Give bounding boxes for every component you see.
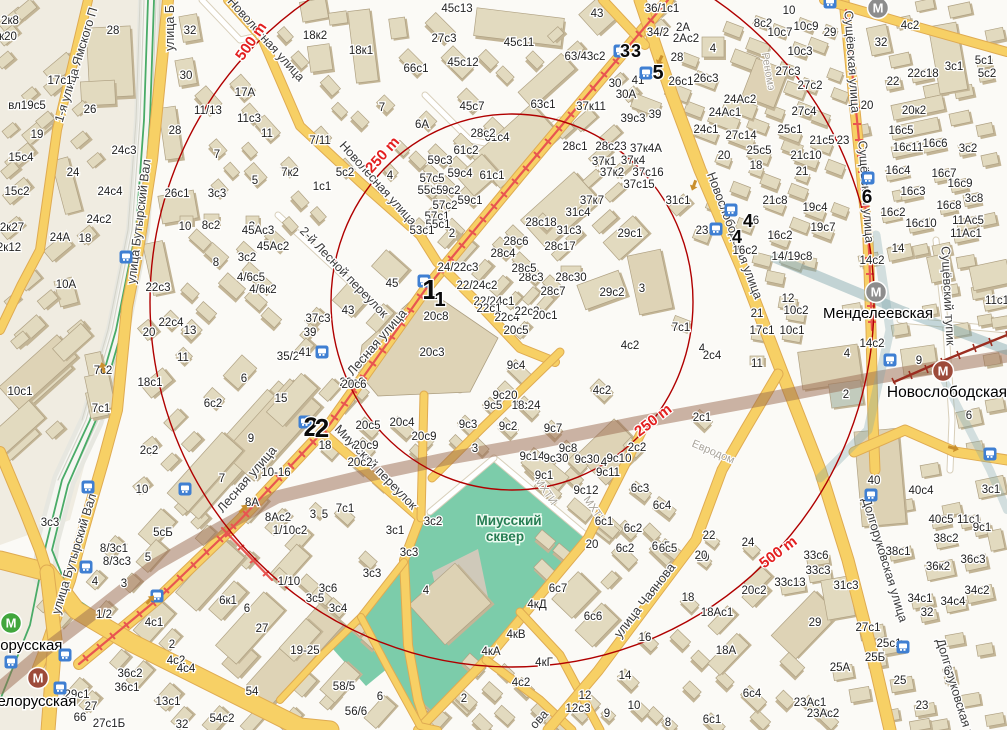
svg-text:6: 6 <box>944 666 950 678</box>
svg-text:11: 11 <box>261 128 273 140</box>
svg-text:Белорусская: Белорусская <box>0 693 76 710</box>
svg-text:20c8: 20c8 <box>424 311 449 323</box>
svg-text:9c2: 9c2 <box>499 421 518 433</box>
svg-text:54c2: 54c2 <box>210 713 235 725</box>
svg-text:16c2: 16c2 <box>768 230 793 242</box>
svg-text:31c4: 31c4 <box>566 207 592 219</box>
svg-text:20c9: 20c9 <box>354 440 379 452</box>
svg-text:40c4: 40c4 <box>909 485 935 497</box>
svg-text:11c3: 11c3 <box>237 113 261 125</box>
svg-text:28c17: 28c17 <box>544 241 575 253</box>
svg-text:17c1: 17c1 <box>750 325 775 337</box>
svg-text:66: 66 <box>74 712 87 724</box>
svg-text:16c3: 16c3 <box>901 186 926 198</box>
svg-text:45c7: 45c7 <box>460 101 485 113</box>
svg-text:9: 9 <box>604 708 610 720</box>
svg-text:6c1: 6c1 <box>703 714 722 726</box>
svg-text:3: 3 <box>631 41 641 61</box>
svg-text:18: 18 <box>750 160 763 172</box>
svg-text:24c3: 24c3 <box>112 145 137 157</box>
svg-text:3c2: 3c2 <box>959 143 978 155</box>
svg-text:9c5: 9c5 <box>484 400 503 412</box>
svg-text:7: 7 <box>219 473 225 485</box>
svg-text:1/10: 1/10 <box>278 576 300 588</box>
svg-text:7: 7 <box>214 149 220 161</box>
svg-text:10c1: 10c1 <box>8 386 33 398</box>
svg-text:18: 18 <box>79 233 92 245</box>
svg-text:24c2: 24c2 <box>87 214 112 226</box>
svg-text:16c11: 16c11 <box>893 142 923 154</box>
svg-text:9c30: 9c30 <box>575 454 600 466</box>
svg-text:59c3: 59c3 <box>428 155 453 167</box>
svg-text:4кА: 4кА <box>481 646 500 658</box>
svg-text:9c30: 9c30 <box>544 453 569 465</box>
svg-text:3c4: 3c4 <box>329 603 348 615</box>
svg-text:18c1: 18c1 <box>138 377 163 389</box>
svg-text:37c3: 37c3 <box>306 313 331 325</box>
svg-text:1/10c2: 1/10c2 <box>273 525 308 537</box>
svg-text:17c1: 17c1 <box>48 75 73 87</box>
svg-text:25: 25 <box>894 675 907 687</box>
svg-text:33c13: 33c13 <box>774 577 805 589</box>
svg-text:37к4А: 37к4А <box>630 143 662 155</box>
svg-text:6c3: 6c3 <box>631 483 650 495</box>
svg-text:31c1: 31c1 <box>666 195 691 207</box>
svg-text:26c1: 26c1 <box>165 188 190 200</box>
svg-text:13: 13 <box>184 325 197 337</box>
svg-text:4/6c5: 4/6c5 <box>237 272 265 284</box>
svg-text:45c13: 45c13 <box>441 3 472 15</box>
svg-text:10c1: 10c1 <box>780 325 805 337</box>
svg-text:36к2: 36к2 <box>926 561 950 573</box>
svg-text:М: М <box>871 285 882 300</box>
svg-text:3c3: 3c3 <box>208 188 227 200</box>
svg-text:54: 54 <box>246 686 259 698</box>
svg-text:2c4: 2c4 <box>703 350 722 362</box>
svg-text:2к12: 2к12 <box>0 242 21 254</box>
svg-text:М: М <box>33 671 44 686</box>
svg-text:43: 43 <box>342 305 355 317</box>
svg-text:10c9: 10c9 <box>794 21 819 33</box>
svg-text:27c1: 27c1 <box>856 622 881 634</box>
svg-text:6А: 6А <box>415 119 429 131</box>
svg-text:20c1: 20c1 <box>533 310 558 322</box>
svg-text:3c3: 3c3 <box>363 568 382 580</box>
svg-text:28c6: 28c6 <box>504 236 529 248</box>
svg-text:36/1c1: 36/1c1 <box>645 3 680 15</box>
svg-text:22c4: 22c4 <box>159 317 185 329</box>
svg-text:34c2: 34c2 <box>965 585 990 597</box>
svg-text:2к8: 2к8 <box>1 15 19 27</box>
svg-text:8c2: 8c2 <box>202 220 221 232</box>
svg-text:23: 23 <box>916 700 929 712</box>
svg-text:3c6: 3c6 <box>319 583 338 595</box>
svg-text:6: 6 <box>241 373 247 385</box>
svg-text:29c1: 29c1 <box>618 228 643 240</box>
svg-text:3c2: 3c2 <box>424 516 443 528</box>
svg-text:3: 3 <box>310 509 316 521</box>
svg-text:4c4: 4c4 <box>177 663 196 675</box>
svg-text:М: М <box>873 1 884 16</box>
svg-text:к20: к20 <box>0 31 17 43</box>
svg-text:3: 3 <box>472 443 478 455</box>
svg-text:4: 4 <box>710 43 717 55</box>
svg-text:7c1: 7c1 <box>336 503 355 515</box>
svg-text:4: 4 <box>387 170 394 182</box>
svg-text:8: 8 <box>213 257 219 269</box>
svg-text:14c2: 14c2 <box>860 338 885 350</box>
svg-text:5: 5 <box>145 552 151 564</box>
svg-text:2к27: 2к27 <box>0 222 24 234</box>
svg-text:10c3: 10c3 <box>788 46 813 58</box>
svg-text:Менделеевская: Менделеевская <box>823 305 933 322</box>
svg-text:27c2: 27c2 <box>798 80 823 92</box>
svg-text:вл19c5: вл19c5 <box>8 100 46 112</box>
svg-text:20: 20 <box>861 100 874 112</box>
svg-text:18: 18 <box>512 400 525 412</box>
svg-text:20: 20 <box>695 550 708 562</box>
svg-text:13c1: 13c1 <box>156 696 181 708</box>
svg-text:17А: 17А <box>235 87 256 99</box>
svg-text:6c2: 6c2 <box>624 523 643 535</box>
svg-text:24/22c3: 24/22c3 <box>438 262 479 274</box>
svg-text:37к11: 37к11 <box>576 101 606 113</box>
svg-text:20c5: 20c5 <box>504 325 529 337</box>
svg-text:3c3: 3c3 <box>41 517 60 529</box>
svg-text:20c9: 20c9 <box>412 431 437 443</box>
svg-text:53c1: 53c1 <box>410 225 435 237</box>
svg-text:10А: 10А <box>56 279 77 291</box>
svg-text:3c1: 3c1 <box>982 484 1001 496</box>
svg-text:20c2: 20c2 <box>742 585 767 597</box>
svg-text:26c1: 26c1 <box>669 76 694 88</box>
svg-text:22: 22 <box>887 76 900 88</box>
svg-text:38c2: 38c2 <box>934 533 959 545</box>
svg-text:6c1: 6c1 <box>595 516 614 528</box>
svg-text:58/5: 58/5 <box>333 681 355 693</box>
svg-text:37к4: 37к4 <box>621 155 646 167</box>
svg-text:22c3: 22c3 <box>146 282 171 294</box>
svg-text:4c2: 4c2 <box>512 677 531 689</box>
svg-text:63c1: 63c1 <box>531 99 556 111</box>
svg-text:45Ac2: 45Ac2 <box>257 241 290 253</box>
svg-text:16c2: 16c2 <box>881 207 906 219</box>
svg-text:4кД: 4кД <box>527 599 546 611</box>
svg-text:Миусский: Миусский <box>476 513 541 528</box>
svg-text:34c4: 34c4 <box>941 596 967 608</box>
svg-text:22: 22 <box>703 530 716 542</box>
svg-text:6c2: 6c2 <box>204 398 223 410</box>
svg-text:34c1: 34c1 <box>908 593 933 605</box>
svg-text:39: 39 <box>304 327 317 339</box>
svg-text:4: 4 <box>423 585 430 597</box>
svg-text:11: 11 <box>751 358 763 370</box>
svg-text:Белорусская: Белорусская <box>0 637 62 654</box>
svg-text:20: 20 <box>718 150 731 162</box>
svg-text:21: 21 <box>796 166 809 178</box>
svg-text:20c3: 20c3 <box>420 347 445 359</box>
svg-text:21c8: 21c8 <box>763 195 788 207</box>
svg-text:61c2: 61c2 <box>454 145 479 157</box>
svg-text:29: 29 <box>809 617 822 629</box>
svg-text:66c1: 66c1 <box>404 63 429 75</box>
svg-text:2: 2 <box>169 639 175 651</box>
svg-text:М: М <box>938 364 949 379</box>
svg-text:37к7: 37к7 <box>580 195 604 207</box>
svg-text:63/43c2: 63/43c2 <box>565 51 606 63</box>
svg-text:6: 6 <box>244 603 250 615</box>
svg-text:55c5: 55c5 <box>418 185 443 197</box>
svg-text:21c5: 21c5 <box>810 135 835 147</box>
svg-text:2: 2 <box>461 693 467 705</box>
svg-text:18: 18 <box>682 592 695 604</box>
svg-text:23: 23 <box>696 225 709 237</box>
svg-text:26c3: 26c3 <box>694 73 719 85</box>
svg-text:4: 4 <box>92 576 99 588</box>
svg-text:5c2: 5c2 <box>336 167 355 179</box>
svg-text:27c4: 27c4 <box>792 106 818 118</box>
svg-text:4: 4 <box>844 348 851 360</box>
svg-text:24: 24 <box>742 537 755 549</box>
svg-text:6c6: 6c6 <box>584 611 603 623</box>
svg-text:6: 6 <box>753 215 759 227</box>
svg-text:10c2: 10c2 <box>784 305 809 317</box>
svg-text:6: 6 <box>862 187 873 208</box>
svg-text:11/13: 11/13 <box>194 105 222 117</box>
svg-text:9c3: 9c3 <box>459 419 478 431</box>
svg-text:36c2: 36c2 <box>118 668 143 680</box>
svg-text:9c1: 9c1 <box>973 522 992 534</box>
svg-text:28c5: 28c5 <box>512 263 537 275</box>
svg-text:М: М <box>6 616 17 631</box>
svg-text:40c5: 40c5 <box>929 514 954 526</box>
svg-text:5: 5 <box>652 62 663 84</box>
svg-text:10: 10 <box>783 5 796 17</box>
svg-text:4c1: 4c1 <box>145 617 164 629</box>
svg-text:10c7: 10c7 <box>768 27 793 39</box>
svg-text:20: 20 <box>586 539 599 551</box>
svg-text:19-25: 19-25 <box>290 645 319 657</box>
svg-text:26: 26 <box>84 104 97 116</box>
svg-text:11Ac1: 11Ac1 <box>950 228 982 240</box>
svg-text:3c2: 3c2 <box>238 252 257 264</box>
svg-text:27c1Б: 27c1Б <box>93 718 125 730</box>
svg-text:59c1: 59c1 <box>458 195 483 207</box>
svg-text:14/19c8: 14/19c8 <box>772 251 813 263</box>
svg-text:37к2: 37к2 <box>600 167 624 179</box>
svg-text:28c18: 28c18 <box>525 217 556 229</box>
svg-text:20c6: 20c6 <box>342 379 367 391</box>
svg-text:59c4: 59c4 <box>448 168 474 180</box>
svg-text:7: 7 <box>379 102 385 114</box>
svg-text:9: 9 <box>916 355 922 367</box>
svg-text:21: 21 <box>751 308 764 320</box>
svg-text:22c18: 22c18 <box>907 68 938 80</box>
svg-text:20c4: 20c4 <box>390 417 416 429</box>
svg-text:8Ac2: 8Ac2 <box>265 512 291 524</box>
svg-text:29: 29 <box>824 27 837 39</box>
svg-text:56/6: 56/6 <box>345 706 367 718</box>
svg-text:10: 10 <box>179 221 192 233</box>
svg-text:36c1: 36c1 <box>115 682 140 694</box>
svg-text:4кВ: 4кВ <box>506 629 525 641</box>
svg-text:20к2: 20к2 <box>902 105 926 117</box>
svg-text:2: 2 <box>449 228 455 240</box>
svg-text:24А: 24А <box>50 232 71 244</box>
svg-text:12c3: 12c3 <box>566 703 591 715</box>
svg-text:4c2: 4c2 <box>593 385 612 397</box>
svg-text:57c5: 57c5 <box>420 173 445 185</box>
svg-text:33c3: 33c3 <box>806 565 831 577</box>
svg-text:9c11: 9c11 <box>596 467 620 479</box>
svg-text:4кГ: 4кГ <box>535 657 553 669</box>
svg-text:25Б: 25Б <box>865 652 885 664</box>
svg-text:36c3: 36c3 <box>961 554 986 566</box>
svg-text:28c23: 28c23 <box>595 141 626 153</box>
svg-text:12: 12 <box>579 690 592 702</box>
svg-text:3c1: 3c1 <box>945 61 964 73</box>
svg-text:10: 10 <box>628 700 641 712</box>
svg-text:25А: 25А <box>830 662 851 674</box>
svg-text:3: 3 <box>121 578 127 590</box>
svg-text:16c5: 16c5 <box>889 125 914 137</box>
svg-text:32: 32 <box>875 37 888 49</box>
svg-text:5: 5 <box>322 509 328 521</box>
svg-text:33c6: 33c6 <box>804 550 829 562</box>
svg-text:31c3: 31c3 <box>557 225 582 237</box>
svg-text:1: 1 <box>434 289 445 311</box>
svg-text:16c9: 16c9 <box>948 178 973 190</box>
svg-text:4/6к2: 4/6к2 <box>249 284 276 296</box>
svg-text:4: 4 <box>743 211 753 231</box>
svg-text:6: 6 <box>377 691 383 703</box>
svg-text:3c1: 3c1 <box>386 525 405 537</box>
svg-text:5c2: 5c2 <box>978 68 997 80</box>
svg-text:5cБ: 5cБ <box>153 527 173 539</box>
svg-text:28c30: 28c30 <box>555 272 586 284</box>
svg-text:43: 43 <box>591 8 604 20</box>
svg-text:19c4: 19c4 <box>803 202 829 214</box>
svg-text:15c4: 15c4 <box>9 152 35 164</box>
svg-text:24: 24 <box>67 167 80 179</box>
svg-text:Новослободская: Новослободская <box>887 384 1007 401</box>
svg-text:15c2: 15c2 <box>5 186 30 198</box>
svg-text:1с1: 1с1 <box>313 181 332 193</box>
svg-text:20c5: 20c5 <box>356 420 381 432</box>
svg-text:45: 45 <box>386 278 399 290</box>
svg-text:2: 2 <box>315 413 329 443</box>
svg-text:20: 20 <box>143 327 156 339</box>
svg-text:7к2: 7к2 <box>281 167 299 179</box>
svg-text:9c12: 9c12 <box>574 485 599 497</box>
svg-text:2c1: 2c1 <box>693 412 712 424</box>
svg-text:23Ac2: 23Ac2 <box>807 708 840 720</box>
svg-text:41: 41 <box>299 347 312 359</box>
svg-text:6c7: 6c7 <box>549 583 568 595</box>
svg-text:16c8: 16c8 <box>937 200 962 212</box>
svg-text:6c4: 6c4 <box>653 500 672 512</box>
svg-text:11Ac5: 11Ac5 <box>952 215 984 227</box>
svg-text:35/2: 35/2 <box>277 351 299 363</box>
svg-text:16c6: 16c6 <box>923 138 948 150</box>
svg-text:15: 15 <box>275 393 288 405</box>
svg-text:7c1: 7c1 <box>672 322 691 334</box>
svg-text:12: 12 <box>782 293 795 305</box>
svg-text:3c3: 3c3 <box>400 547 419 559</box>
svg-text:19: 19 <box>31 129 44 141</box>
svg-text:2Ac2: 2Ac2 <box>673 33 699 45</box>
svg-text:11c1: 11c1 <box>985 295 1007 307</box>
svg-text:7/11: 7/11 <box>309 135 331 147</box>
svg-text:24Ac1: 24Ac1 <box>709 107 742 119</box>
svg-text:61c1: 61c1 <box>480 170 505 182</box>
svg-text:32: 32 <box>184 25 197 37</box>
svg-text:30: 30 <box>180 70 193 82</box>
svg-text:14c2: 14c2 <box>860 255 885 267</box>
svg-text:8A: 8A <box>245 497 259 509</box>
svg-text:8/3c1: 8/3c1 <box>100 543 128 555</box>
svg-text:4: 4 <box>732 227 742 247</box>
svg-text:6: 6 <box>966 410 972 422</box>
svg-text:3: 3 <box>620 41 630 61</box>
svg-text:16: 16 <box>639 632 652 644</box>
svg-text:28c1: 28c1 <box>563 141 588 153</box>
svg-text:7c1: 7c1 <box>92 403 111 415</box>
svg-text:5: 5 <box>252 175 258 187</box>
svg-text:30А: 30А <box>616 89 637 101</box>
svg-text:9c14: 9c14 <box>520 451 546 463</box>
svg-text:6c4: 6c4 <box>743 688 762 700</box>
svg-text:9: 9 <box>248 433 254 445</box>
svg-text:23: 23 <box>837 135 850 147</box>
svg-text:27: 27 <box>256 623 269 635</box>
svg-text:14: 14 <box>892 243 905 255</box>
svg-text:19c7: 19c7 <box>811 222 836 234</box>
svg-text:24c4: 24c4 <box>98 186 124 198</box>
svg-text:8/3c3: 8/3c3 <box>103 556 131 568</box>
svg-text:4c2: 4c2 <box>621 340 640 352</box>
svg-text:21c10: 21c10 <box>790 150 821 162</box>
svg-text:27: 27 <box>85 701 98 713</box>
svg-text:27c14: 27c14 <box>725 130 757 142</box>
svg-text:38c1: 38c1 <box>886 546 911 558</box>
svg-text:сквер: сквер <box>486 529 524 544</box>
svg-text:6к1: 6к1 <box>219 595 237 607</box>
svg-text:2c2: 2c2 <box>140 445 159 457</box>
svg-text:10-16: 10-16 <box>261 467 290 479</box>
svg-text:10: 10 <box>136 484 149 496</box>
svg-text:34/2: 34/2 <box>647 27 669 39</box>
svg-text:28: 28 <box>671 52 684 64</box>
svg-text:3c8: 3c8 <box>965 193 984 205</box>
svg-text:4c2: 4c2 <box>901 20 920 32</box>
svg-text:16c10: 16c10 <box>905 218 936 230</box>
svg-text:5c1: 5c1 <box>975 55 994 67</box>
svg-text:28c2: 28c2 <box>471 128 496 140</box>
svg-text:9c7: 9c7 <box>544 423 563 435</box>
svg-text:11: 11 <box>177 352 189 364</box>
svg-text:25c5: 25c5 <box>747 145 772 157</box>
svg-text:улица Б: улица Б <box>163 5 177 51</box>
svg-text:32: 32 <box>921 607 934 619</box>
svg-text:28c7: 28c7 <box>541 286 566 298</box>
svg-text:18к1: 18к1 <box>349 45 373 57</box>
svg-text:27c3: 27c3 <box>776 66 801 78</box>
svg-text:28: 28 <box>107 25 120 37</box>
svg-text:39: 39 <box>649 109 662 121</box>
svg-text:18Ac1: 18Ac1 <box>701 607 734 619</box>
svg-text:1/2: 1/2 <box>96 609 112 621</box>
